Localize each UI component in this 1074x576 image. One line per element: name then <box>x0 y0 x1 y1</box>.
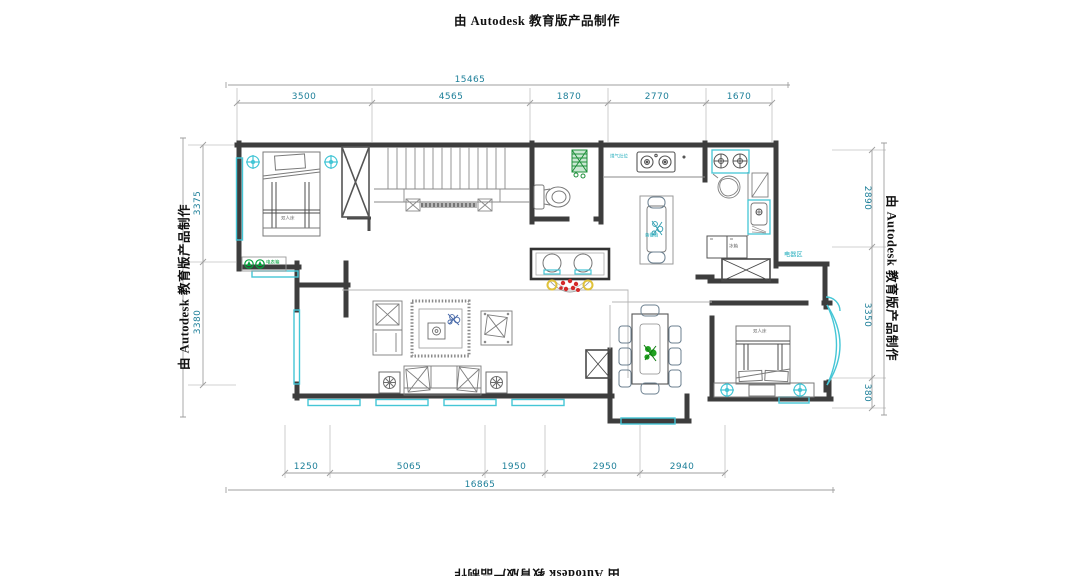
plant-icon-bath <box>572 150 587 178</box>
stove-note-label: 煤气灶位 <box>610 153 628 159</box>
kitchen-counter <box>604 172 748 236</box>
appliance-zone-label: 电器区 <box>784 250 802 259</box>
floor-plan-drawing <box>0 0 1074 576</box>
watermark-top: 由 Autodesk 教育版产品制作 <box>454 10 620 29</box>
dim-bottom-1: 1250 <box>294 462 319 472</box>
window-living-left <box>294 310 300 384</box>
dim-top-2: 4565 <box>439 92 464 102</box>
dim-left-1: 3375 <box>193 191 203 216</box>
watermark-right: 由 Autodesk 教育版产品制作 <box>884 195 903 361</box>
sliding-door-bedroom1 <box>252 271 298 277</box>
closet-column <box>722 259 770 281</box>
shaft-column <box>586 350 610 378</box>
dim-top-4: 2770 <box>645 92 670 102</box>
dim-right-3: 380 <box>862 384 872 402</box>
staircase <box>374 147 530 211</box>
refrigerator <box>707 236 747 258</box>
bay-window-outer-arc <box>827 305 840 385</box>
rug <box>412 301 469 356</box>
side-table-lamp-right <box>486 372 507 393</box>
island-table <box>640 196 673 264</box>
sink-icon <box>748 200 770 234</box>
watermark-left: 由 Autodesk 教育版产品制作 <box>174 204 193 370</box>
bed-main <box>263 152 320 236</box>
dim-bottom-2: 5065 <box>397 462 422 472</box>
dim-top-3: 1870 <box>557 92 582 102</box>
bed-second-label: 双人床 <box>753 328 766 334</box>
ceiling-light-icons-bedroom1 <box>246 155 338 169</box>
wardrobe-column <box>342 147 369 217</box>
dim-left-2: 3380 <box>193 310 203 335</box>
dim-top-total: 15465 <box>455 75 486 85</box>
cooktop-icon <box>712 150 749 173</box>
dim-top-5: 1670 <box>727 92 752 102</box>
panel-label: 电表箱 <box>266 259 279 265</box>
dim-right-2: 3350 <box>862 303 872 328</box>
plant-icon-dining <box>644 345 657 361</box>
armchair <box>481 311 512 345</box>
chaise-sofa <box>373 301 402 355</box>
island-note-label: 备餐台 <box>645 232 658 238</box>
fridge-label: 冰箱 <box>729 243 738 249</box>
gas-stove-icon <box>637 152 685 172</box>
floor-plan-sheet: 由 Autodesk 教育版产品制作 由 Autodesk 教育版产品制作 由 … <box>0 0 1074 576</box>
plant-icon-living <box>448 314 460 325</box>
toilet <box>534 185 570 209</box>
sofa-three-seat <box>404 366 481 395</box>
dim-bottom-3: 1950 <box>502 462 527 472</box>
wall-steps <box>347 218 371 231</box>
entry-console <box>531 249 609 292</box>
watermark-bottom: 由 Autodesk 教育版产品制作 <box>454 566 620 576</box>
dim-bottom-4: 2950 <box>593 462 618 472</box>
dim-right-1: 2890 <box>862 186 872 211</box>
dim-bottom-5: 2940 <box>670 462 695 472</box>
beam-lines <box>342 290 712 378</box>
side-table-lamp-left <box>379 372 400 393</box>
bed-main-label: 双人床 <box>281 215 294 221</box>
bay-window-inner-arc <box>827 305 837 385</box>
coffee-table <box>428 323 445 339</box>
wok-icon <box>713 174 740 198</box>
bed-second <box>714 326 814 397</box>
dim-top-1: 3500 <box>292 92 317 102</box>
walls <box>237 143 831 421</box>
cutting-board-icon <box>752 173 768 197</box>
dim-bottom-total: 16865 <box>465 480 496 490</box>
